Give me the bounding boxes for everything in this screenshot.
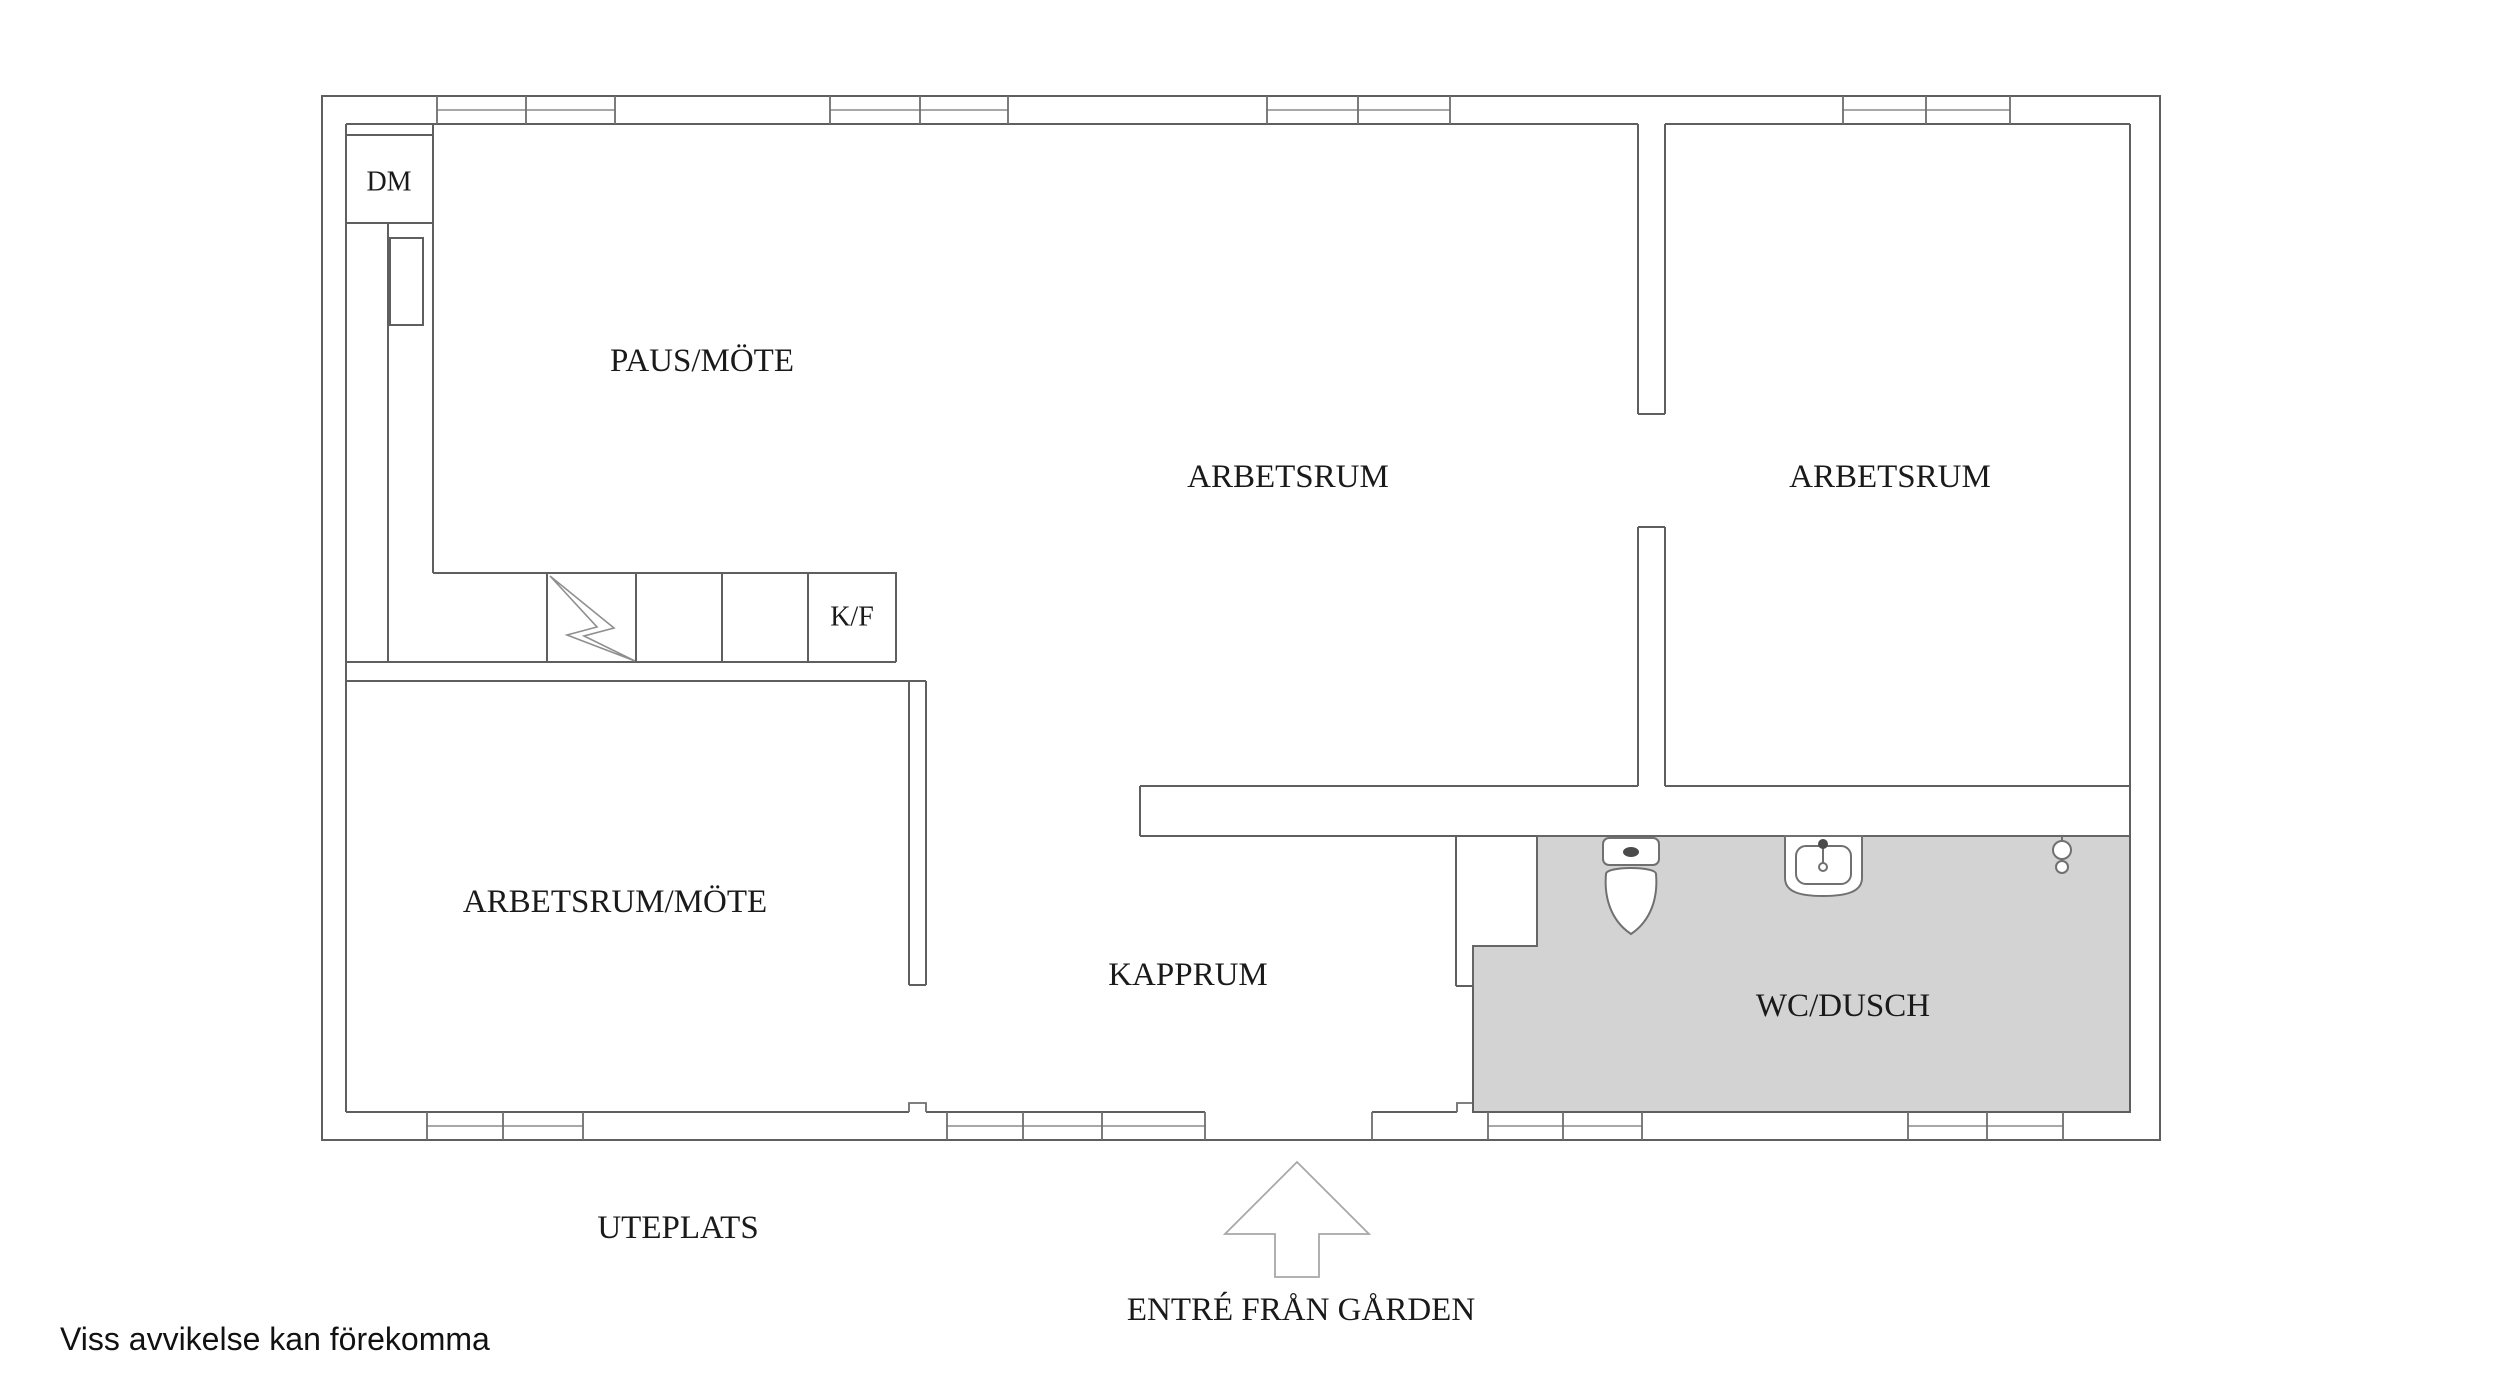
arbetsrum-mote-walls xyxy=(346,681,926,985)
shower-head xyxy=(2056,861,2068,873)
sink-symbol xyxy=(1785,836,1862,896)
label-kapprum: KAPPRUM xyxy=(1108,957,1268,993)
disclaimer-text: Viss avvikelse kan förekomma xyxy=(60,1321,490,1357)
top-wall-windows xyxy=(437,96,2010,124)
floor-plan-page: DM PAUS/MÖTE ARBETSRUM ARBETSRUM K/F ARB… xyxy=(0,0,2500,1394)
toilet-button xyxy=(1623,847,1639,857)
sink-faucet-knob xyxy=(1818,839,1828,849)
label-uteplats: UTEPLATS xyxy=(597,1210,758,1246)
label-dm: DM xyxy=(366,167,411,198)
counter-cell-dividers xyxy=(547,573,808,662)
label-paus-mote: PAUS/MÖTE xyxy=(610,343,794,379)
room-labels: DM PAUS/MÖTE ARBETSRUM ARBETSRUM K/F ARB… xyxy=(366,167,1990,1329)
bottom-wall-junction-notches xyxy=(909,1103,1473,1112)
label-arbetsrum-2: ARBETSRUM xyxy=(1789,459,1991,495)
bottom-wall-windows xyxy=(427,1112,2063,1140)
floor-plan-canvas: DM PAUS/MÖTE ARBETSRUM ARBETSRUM K/F ARB… xyxy=(0,0,2500,1394)
label-kf: K/F xyxy=(830,602,874,633)
counter-row-outline xyxy=(346,573,896,662)
label-entre: ENTRÉ FRÅN GÅRDEN xyxy=(1127,1291,1476,1328)
strip-appliance-box xyxy=(390,238,423,325)
sink-drain xyxy=(1819,863,1827,871)
shower-valve xyxy=(2053,841,2071,859)
top-window-ticks xyxy=(437,96,2010,124)
lightning-bolt-symbol xyxy=(550,576,635,661)
bottom-window-ticks xyxy=(427,1112,2063,1140)
label-arbetsrum-mote: ARBETSRUM/MÖTE xyxy=(463,884,767,920)
entrance-arrow-icon xyxy=(1225,1162,1369,1277)
label-arbetsrum-1: ARBETSRUM xyxy=(1187,459,1389,495)
arbetsrum-mote-room xyxy=(346,681,926,985)
corridor-wall xyxy=(1140,786,1537,836)
kapprum-right-wall xyxy=(1456,836,1473,1112)
kitchen-block xyxy=(346,124,896,662)
arbetsrum-divider-wall xyxy=(1638,124,1665,786)
label-wc-dusch: WC/DUSCH xyxy=(1756,988,1930,1024)
